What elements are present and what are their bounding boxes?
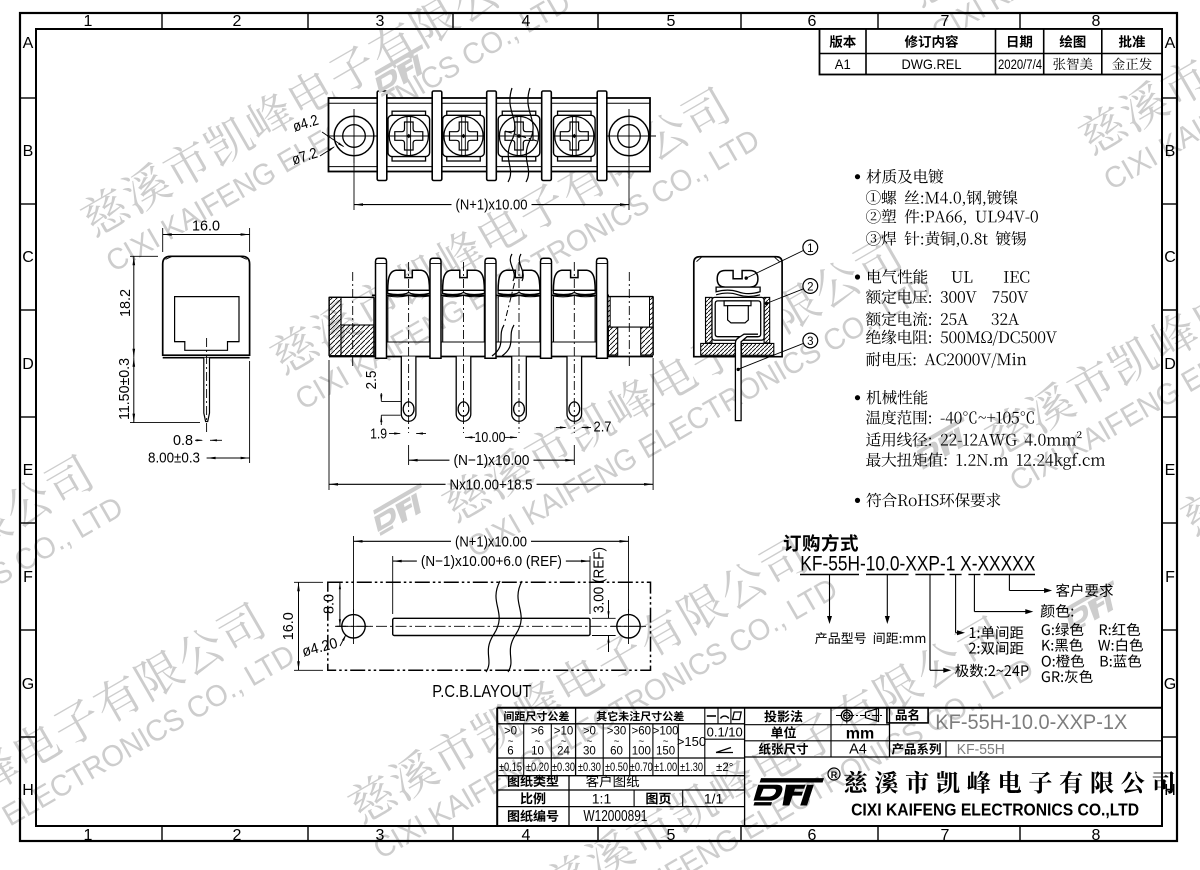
- svg-text:±1.00: ±1.00: [654, 762, 677, 774]
- svg-text:16.0: 16.0: [192, 218, 220, 235]
- svg-text:C: C: [22, 249, 34, 266]
- svg-text:G: G: [22, 676, 34, 693]
- svg-text:2.7: 2.7: [594, 419, 612, 436]
- svg-text:Nx10.00+18.5: Nx10.00+18.5: [450, 476, 533, 493]
- svg-text:>150: >150: [677, 734, 706, 749]
- svg-text:30: 30: [583, 746, 596, 758]
- svg-text:6: 6: [507, 746, 513, 758]
- svg-text:4: 4: [522, 13, 531, 30]
- svg-text:(N+1)x10.00: (N+1)x10.00: [455, 533, 527, 550]
- svg-text:±0.50: ±0.50: [605, 762, 628, 774]
- svg-text:7: 7: [941, 13, 950, 30]
- svg-text:C: C: [1164, 249, 1176, 266]
- svg-text:E: E: [23, 462, 34, 479]
- svg-text:2: 2: [233, 827, 242, 844]
- svg-text:2.5: 2.5: [363, 371, 380, 390]
- svg-text:8.00±0.3: 8.00±0.3: [148, 450, 200, 467]
- svg-text:A: A: [1165, 35, 1176, 52]
- svg-text:1/1: 1/1: [704, 791, 724, 807]
- svg-text:5: 5: [667, 13, 676, 30]
- svg-text:R: R: [831, 770, 838, 780]
- svg-text:6: 6: [808, 827, 817, 844]
- svg-text:H: H: [22, 782, 34, 799]
- svg-text:P.C.B.LAYOUT: P.C.B.LAYOUT: [432, 681, 531, 701]
- svg-text:1.9: 1.9: [370, 426, 387, 443]
- svg-text:8.0: 8.0: [321, 594, 338, 614]
- svg-text:18.2: 18.2: [117, 289, 134, 317]
- svg-text:G: G: [1164, 676, 1176, 693]
- svg-text:±0.15: ±0.15: [499, 762, 522, 774]
- svg-text:E: E: [1165, 462, 1176, 479]
- svg-text:D: D: [1164, 356, 1176, 373]
- svg-text:1: 1: [807, 243, 813, 255]
- svg-text:2: 2: [807, 282, 813, 294]
- svg-text:CIXI KAIFENG ELECTRONICS CO.,L: CIXI KAIFENG ELECTRONICS CO.,LTD: [851, 800, 1139, 820]
- svg-text:1: 1: [84, 827, 93, 844]
- svg-text:150: 150: [656, 746, 675, 758]
- svg-text:2: 2: [233, 13, 242, 30]
- svg-text:1: 1: [84, 13, 93, 30]
- svg-text:DWG.REL: DWG.REL: [902, 56, 962, 72]
- svg-text:100: 100: [632, 746, 651, 758]
- svg-text:A: A: [23, 35, 34, 52]
- svg-text:4: 4: [522, 827, 531, 844]
- svg-text:24: 24: [557, 746, 570, 758]
- svg-text:A4: A4: [849, 742, 867, 758]
- svg-text:7: 7: [941, 827, 950, 844]
- svg-text:2020/7/4: 2020/7/4: [998, 56, 1042, 72]
- svg-text:KF-55H-10.0-XXP-1X: KF-55H-10.0-XXP-1X: [935, 710, 1127, 734]
- svg-text:(N−1)x10.00: (N−1)x10.00: [453, 452, 529, 469]
- svg-text:±1.30: ±1.30: [680, 762, 703, 774]
- svg-text:A1: A1: [835, 56, 851, 72]
- svg-text:W12000891: W12000891: [583, 808, 647, 825]
- svg-text:60: 60: [610, 746, 623, 758]
- svg-text:KF-55H-10.0-XXP-1 X-XXXXX: KF-55H-10.0-XXP-1 X-XXXXX: [800, 553, 1035, 576]
- svg-text:±0.30: ±0.30: [552, 762, 575, 774]
- svg-text:6: 6: [808, 13, 817, 30]
- svg-text:16.0: 16.0: [280, 612, 297, 640]
- svg-text:±0.20: ±0.20: [526, 762, 549, 774]
- svg-text:5: 5: [667, 827, 676, 844]
- svg-text:±2°: ±2°: [716, 762, 733, 774]
- svg-text:8: 8: [1092, 13, 1101, 30]
- svg-text:(N+1)x10.00: (N+1)x10.00: [456, 197, 528, 214]
- svg-text:B: B: [1165, 143, 1176, 160]
- svg-text:11.50±0.3: 11.50±0.3: [116, 358, 133, 420]
- svg-text:8: 8: [1092, 827, 1101, 844]
- svg-text:KF-55H: KF-55H: [957, 741, 1005, 758]
- svg-text:(N−1)x10.00+6.0 (REF): (N−1)x10.00+6.0 (REF): [421, 553, 562, 570]
- svg-text:D: D: [22, 356, 34, 373]
- svg-text:mm: mm: [846, 726, 874, 743]
- svg-text:±0.70: ±0.70: [630, 762, 653, 774]
- svg-text:0.8: 0.8: [173, 432, 193, 449]
- svg-text:1:1: 1:1: [592, 791, 612, 807]
- svg-text:3: 3: [376, 827, 385, 844]
- svg-text:F: F: [23, 569, 33, 586]
- svg-text:3.00 (REF): 3.00 (REF): [591, 547, 608, 613]
- svg-text:±0.30: ±0.30: [578, 762, 601, 774]
- svg-text:B: B: [23, 143, 34, 160]
- svg-text:3: 3: [376, 13, 385, 30]
- svg-text:3: 3: [807, 336, 813, 348]
- svg-text:10.00: 10.00: [475, 429, 506, 446]
- svg-text:10: 10: [531, 746, 544, 758]
- svg-text:0.1/10: 0.1/10: [707, 725, 743, 740]
- svg-text:F: F: [1165, 569, 1175, 586]
